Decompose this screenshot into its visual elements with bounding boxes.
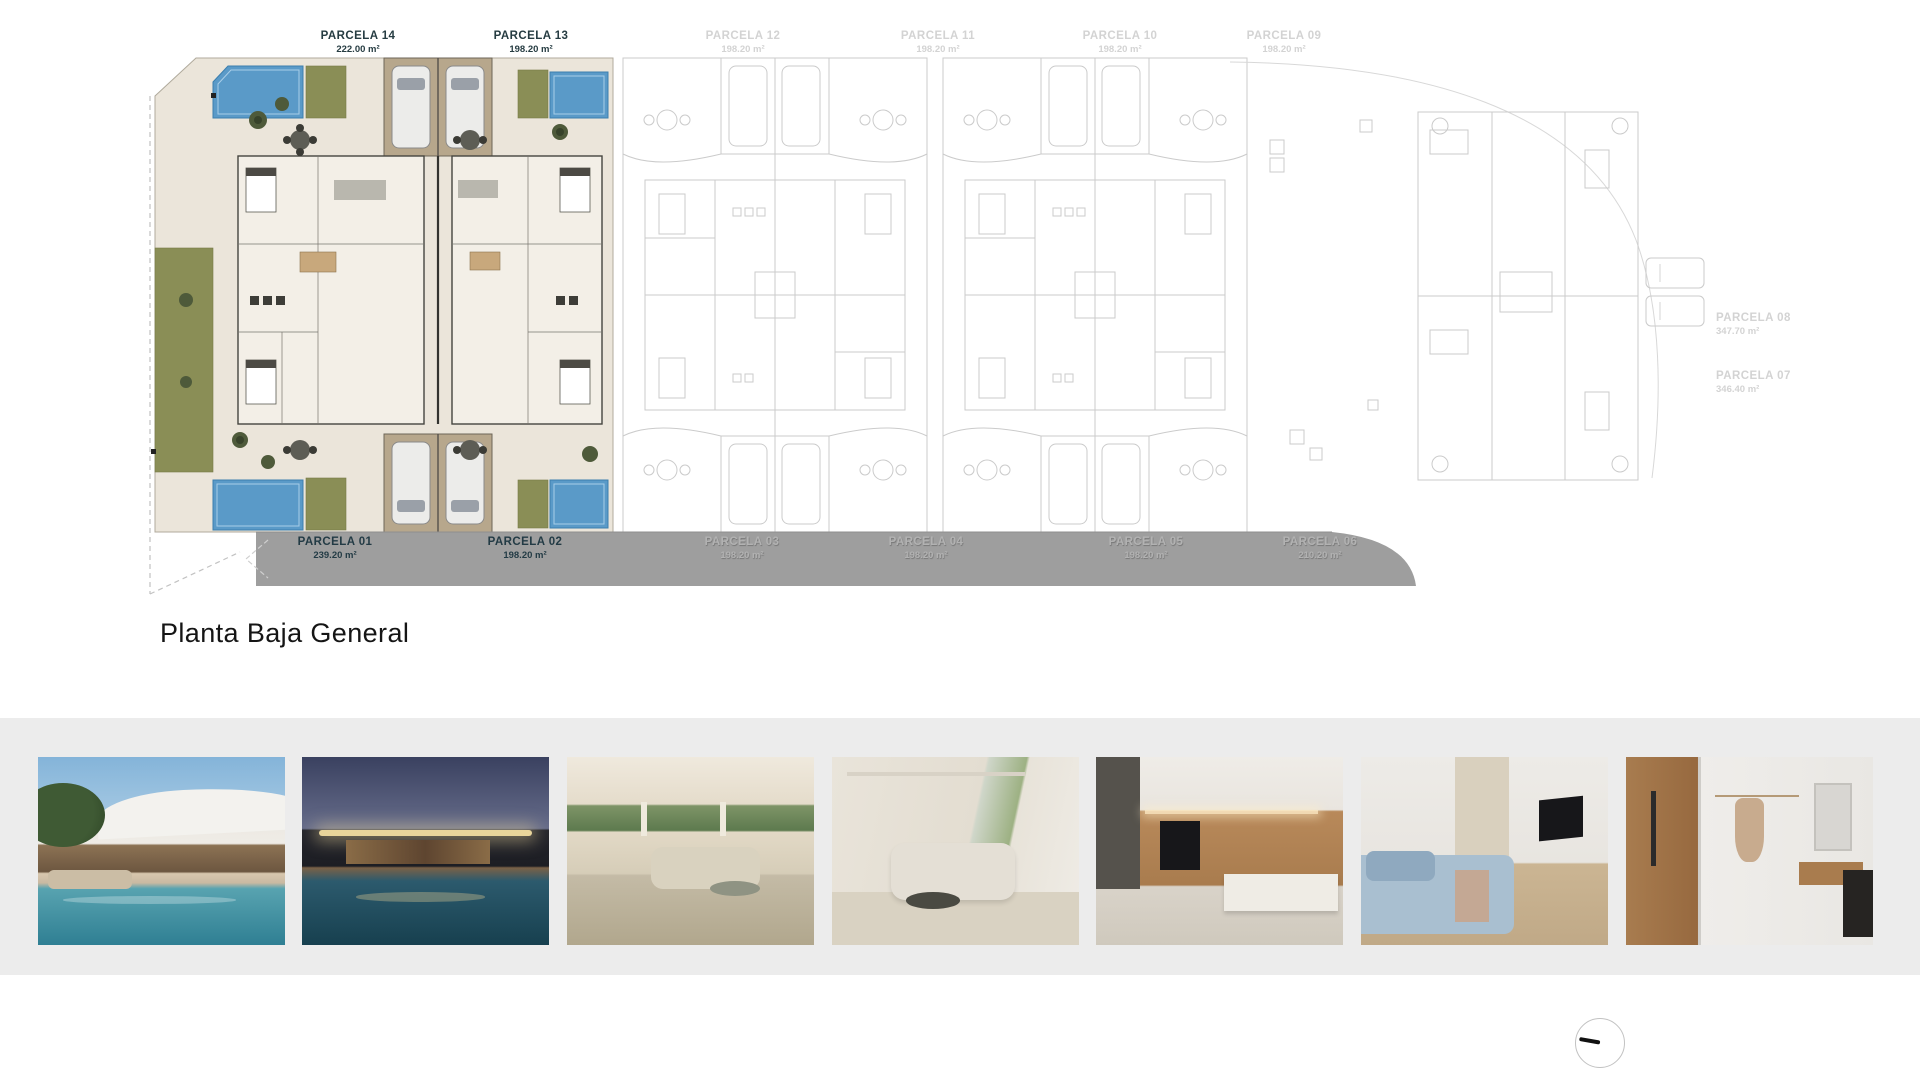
parcela-area: 198.20 m²	[494, 44, 569, 55]
parcela-name: PARCELA 08	[1716, 312, 1791, 326]
photo-art	[1160, 821, 1200, 870]
photo-art	[356, 892, 484, 901]
parcela-name: PARCELA 12	[706, 30, 781, 44]
photo-art	[1096, 757, 1140, 889]
parcela-13-label: PARCELA 13 198.20 m²	[494, 30, 569, 55]
parcela-11-label: PARCELA 11 198.20 m²	[901, 30, 975, 55]
photo-art	[1843, 870, 1873, 938]
parcela-name: PARCELA 02	[488, 536, 563, 550]
parcela-name: PARCELA 07	[1716, 370, 1791, 384]
photo-art	[1715, 795, 1799, 798]
parcela-name: PARCELA 11	[901, 30, 975, 44]
photo-art	[1366, 851, 1435, 881]
photo-art	[1455, 757, 1509, 870]
parcela-06-label: PARCELA 06 210.20 m²	[1283, 536, 1358, 561]
brochure-page: PARCELA 14 222.00 m² PARCELA 13 198.20 m…	[0, 0, 1920, 1080]
parcela-area: 198.20 m²	[1083, 44, 1158, 55]
photo-thumbnail-villa-pool-day[interactable]	[38, 757, 285, 945]
parcela-area: 210.20 m²	[1283, 550, 1358, 561]
parcela-name: PARCELA 10	[1083, 30, 1158, 44]
page-title: Planta Baja General	[160, 618, 409, 649]
photo-thumbnail-villa-night[interactable]	[302, 757, 549, 945]
photo-art	[319, 830, 531, 836]
parcela-14-label: PARCELA 14 222.00 m²	[321, 30, 396, 55]
photo-art	[1698, 757, 1702, 945]
parcela-08-07-plan	[1230, 62, 1704, 480]
parcela-02-label: PARCELA 02 198.20 m²	[488, 536, 563, 561]
parcela-name: PARCELA 03	[705, 536, 780, 550]
photo-art	[96, 783, 285, 839]
parcela-13-14-plan	[151, 58, 613, 532]
parcela-area: 222.00 m²	[321, 44, 396, 55]
parcela-name: PARCELA 09	[1247, 30, 1322, 44]
photo-art	[1651, 791, 1656, 866]
parcela-08-label: PARCELA 08 347.70 m²	[1716, 312, 1791, 337]
photo-thumbnail-bathroom[interactable]	[1626, 757, 1873, 945]
site-plan-drawing	[0, 0, 1920, 700]
parcela-area: 347.70 m²	[1716, 326, 1791, 337]
parcela-area: 198.20 m²	[706, 44, 781, 55]
parcela-name: PARCELA 01	[298, 536, 373, 550]
parcela-name: PARCELA 06	[1283, 536, 1358, 550]
photo-art	[1455, 870, 1490, 923]
parcela-07-label: PARCELA 07 346.40 m²	[1716, 370, 1791, 395]
parcela-10-label: PARCELA 10 198.20 m²	[1083, 30, 1158, 55]
parcela-name: PARCELA 05	[1109, 536, 1184, 550]
parcela-area: 198.20 m²	[1247, 44, 1322, 55]
parcela-name: PARCELA 13	[494, 30, 569, 44]
photo-art	[38, 783, 105, 847]
photo-thumbnail-kitchen-dining[interactable]	[1096, 757, 1343, 945]
parcela-04-label: PARCELA 04 198.20 m²	[889, 536, 964, 561]
photo-art	[1735, 798, 1765, 862]
clock-hand-icon	[1579, 1038, 1600, 1045]
photo-art	[1814, 783, 1853, 851]
parcela-12-11-plan	[623, 58, 927, 532]
parcela-05-label: PARCELA 05 198.20 m²	[1109, 536, 1184, 561]
parcela-area: 198.20 m²	[1109, 550, 1184, 561]
photo-art	[346, 840, 489, 864]
clock-icon	[1575, 1018, 1625, 1068]
photo-thumbnail-bedroom[interactable]	[1361, 757, 1608, 945]
parcela-area: 346.40 m²	[1716, 384, 1791, 395]
parcela-area: 198.20 m²	[901, 44, 975, 55]
photo-art	[891, 843, 1015, 899]
photo-art	[1539, 796, 1583, 842]
photo-art	[48, 870, 132, 889]
photo-thumbnail-living-terrace[interactable]	[567, 757, 814, 945]
parcela-area: 239.20 m²	[298, 550, 373, 561]
parcela-name: PARCELA 14	[321, 30, 396, 44]
photo-thumbnail-living-room[interactable]	[832, 757, 1079, 945]
photo-art	[641, 802, 647, 836]
road-band	[246, 532, 1416, 586]
parcela-01-label: PARCELA 01 239.20 m²	[298, 536, 373, 561]
parcela-name: PARCELA 04	[889, 536, 964, 550]
photo-art	[1224, 874, 1338, 912]
parcela-area: 198.20 m²	[889, 550, 964, 561]
parcela-12-label: PARCELA 12 198.20 m²	[706, 30, 781, 55]
photo-art	[720, 802, 726, 836]
photo-art	[63, 896, 236, 904]
photo-art	[1145, 810, 1318, 815]
photo-art	[710, 881, 759, 896]
parcela-area: 198.20 m²	[488, 550, 563, 561]
photo-art	[847, 772, 1025, 776]
parcela-10-09-plan	[943, 58, 1247, 532]
parcela-area: 198.20 m²	[705, 550, 780, 561]
parcela-09-label: PARCELA 09 198.20 m²	[1247, 30, 1322, 55]
parcela-03-label: PARCELA 03 198.20 m²	[705, 536, 780, 561]
